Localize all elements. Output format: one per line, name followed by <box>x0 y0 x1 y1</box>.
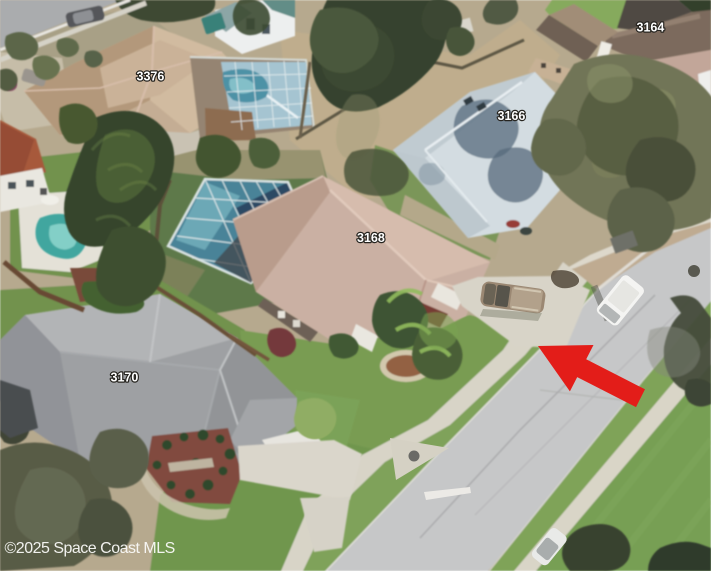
svg-text:3164: 3164 <box>637 21 665 35</box>
svg-text:3166: 3166 <box>498 109 526 123</box>
svg-text:3168: 3168 <box>357 231 385 245</box>
svg-text:©2025 Space Coast MLS: ©2025 Space Coast MLS <box>5 540 175 557</box>
svg-text:3376: 3376 <box>137 70 165 84</box>
svg-text:3170: 3170 <box>111 371 139 385</box>
